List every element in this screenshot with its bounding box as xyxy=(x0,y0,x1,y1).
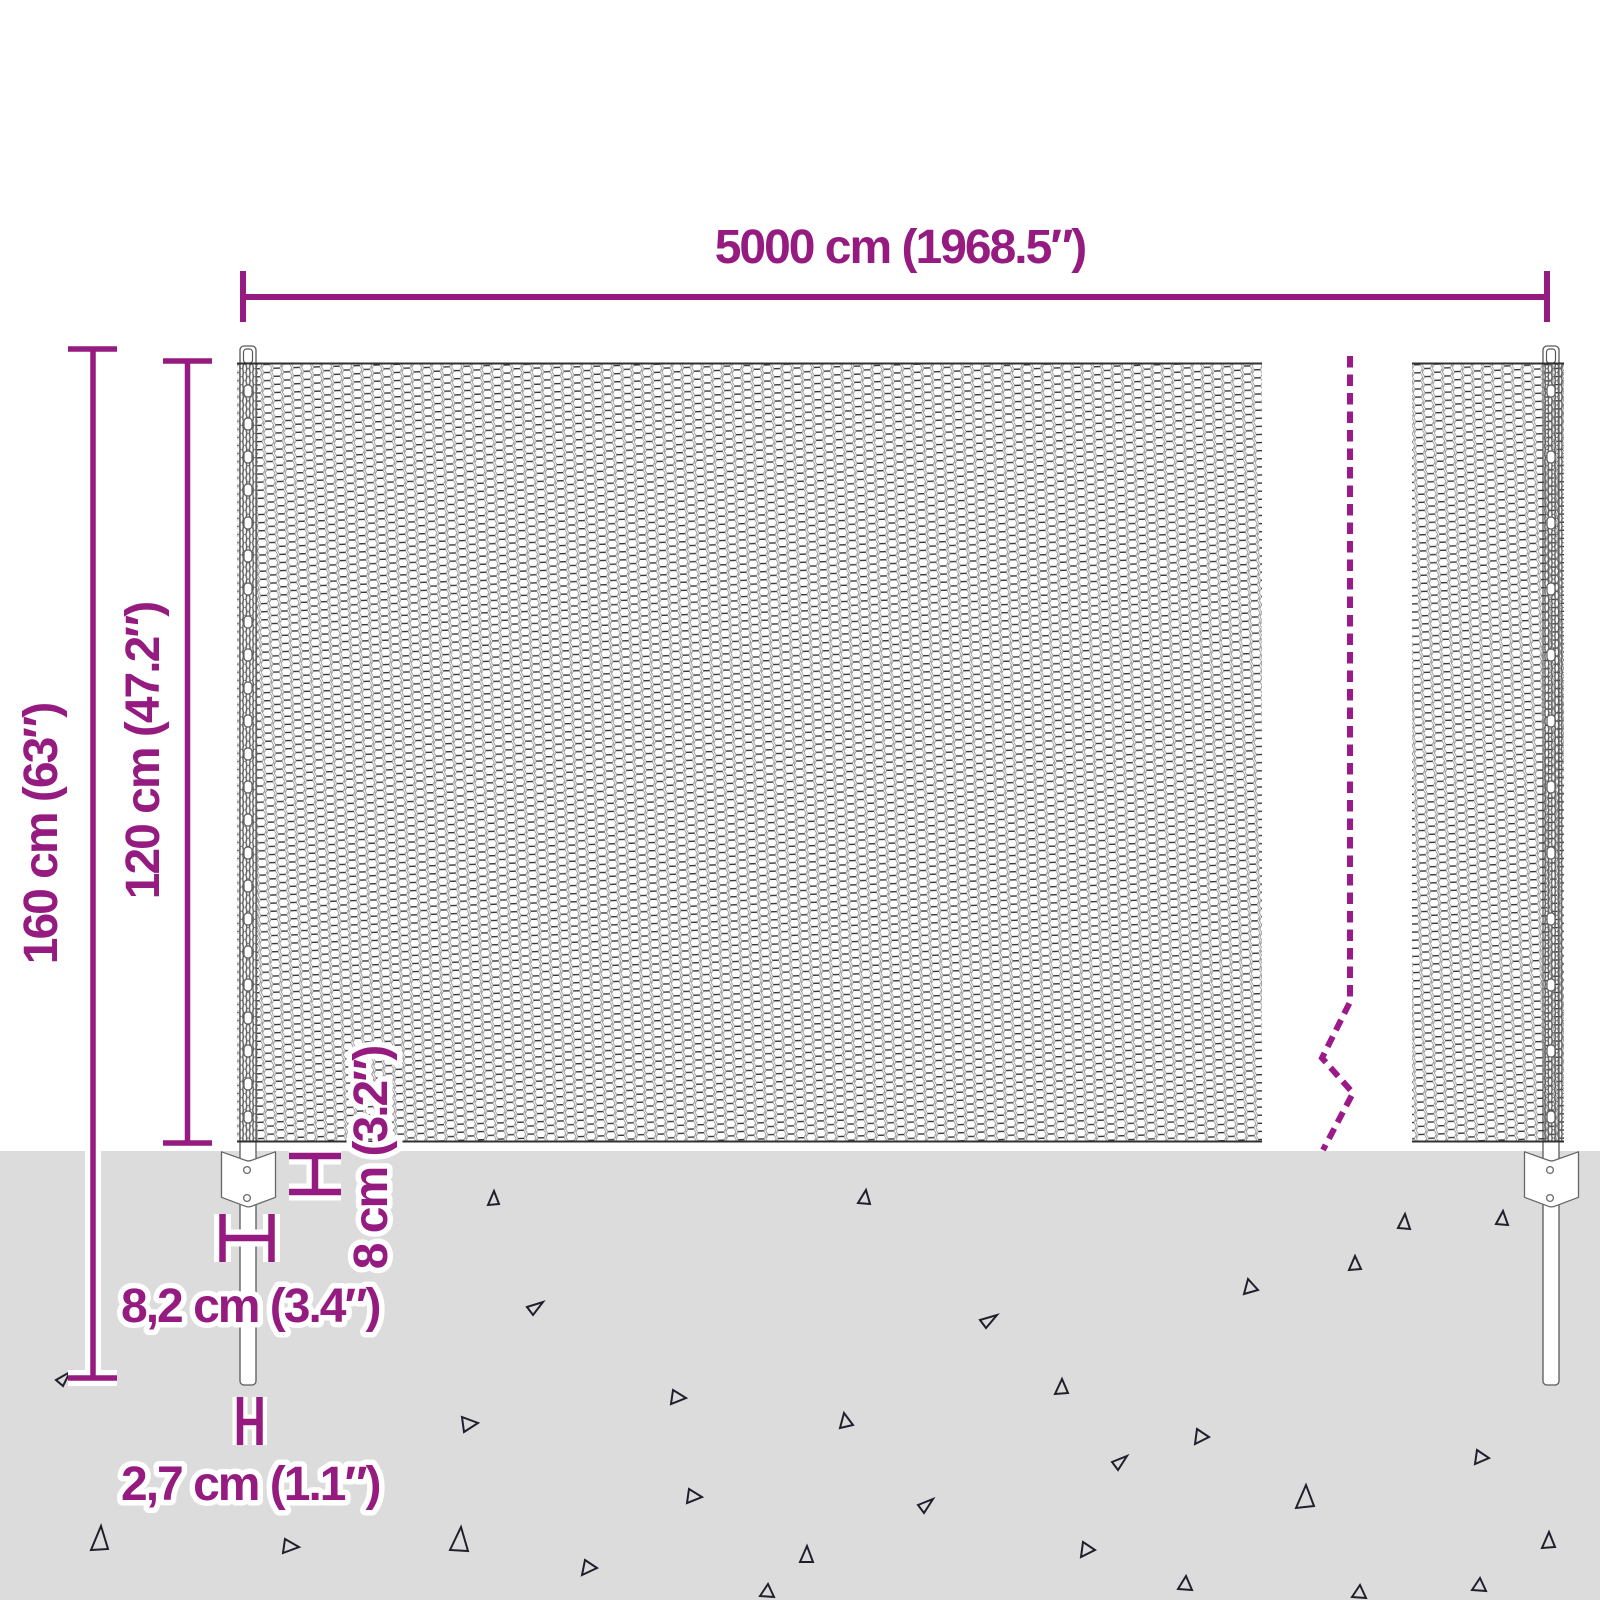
svg-text:120 cm (47.2″): 120 cm (47.2″) xyxy=(117,603,170,900)
svg-text:8,2 cm (3.4″): 8,2 cm (3.4″) xyxy=(121,1280,379,1333)
svg-text:5000 cm (1968.5″): 5000 cm (1968.5″) xyxy=(715,221,1086,274)
svg-text:2,7 cm (1.1″): 2,7 cm (1.1″) xyxy=(121,1458,379,1511)
svg-text:160 cm (63″): 160 cm (63″) xyxy=(15,704,68,965)
svg-text:8 cm (3.2″): 8 cm (3.2″) xyxy=(345,1047,398,1269)
